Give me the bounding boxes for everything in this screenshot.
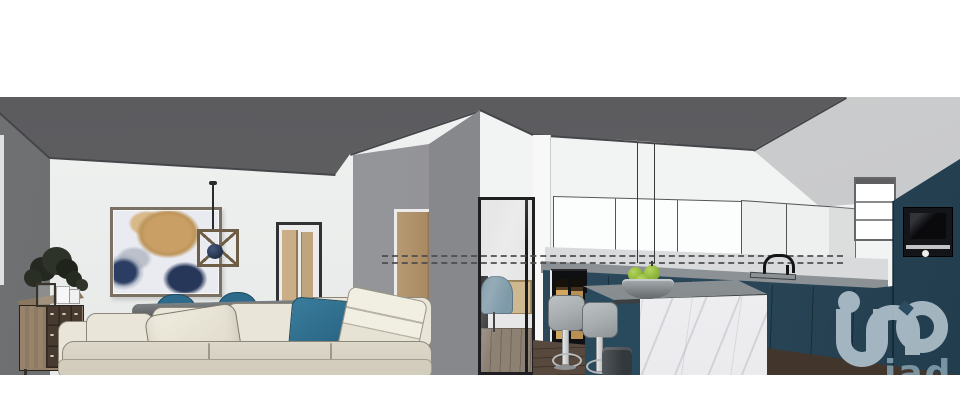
- built-in-microwave-oven: [903, 207, 953, 257]
- island-pendant-cord: [637, 143, 638, 263]
- glass-partition: [478, 197, 535, 375]
- sideboard-wood-door: [20, 306, 46, 368]
- photo-frame: [56, 286, 70, 304]
- cabinet-seam: [615, 199, 616, 251]
- shaded-upper-cabinet: [829, 206, 856, 260]
- bar-stool-seat: [582, 302, 618, 338]
- shelf: [856, 219, 894, 221]
- island-pendant-cord: [654, 143, 655, 263]
- photo-frame: [69, 289, 80, 304]
- lantern-vase: [36, 283, 56, 307]
- waste-bin: [602, 347, 632, 375]
- pendant-light: [197, 229, 239, 267]
- bar-stool-seat: [548, 295, 585, 331]
- open-shelving-unit: [854, 177, 896, 241]
- iad-watermark: iad: [836, 291, 960, 375]
- rendering-page: iad: [0, 0, 960, 415]
- cabinet-seam: [677, 200, 678, 252]
- interior-rendering: iad: [0, 97, 960, 375]
- wall-edge-highlight: [0, 135, 4, 285]
- microwave-knob: [922, 250, 929, 257]
- upper-cabinets: [553, 196, 743, 255]
- corner-upper-cabinets: [741, 200, 831, 262]
- pendant-rod: [212, 183, 214, 231]
- apple-stem: [651, 261, 653, 266]
- bar-stool-base: [554, 365, 576, 370]
- cabinet-seam: [786, 204, 787, 258]
- faucet: [763, 254, 795, 273]
- watermark-brand-text: iad: [884, 353, 952, 375]
- sofa-front-edge: [58, 359, 432, 375]
- pendant-bulb: [207, 244, 223, 259]
- microwave-door-glass: [910, 213, 946, 239]
- shelf: [856, 201, 894, 203]
- shelf-top-band: [856, 179, 894, 184]
- microwave-handle: [906, 245, 950, 249]
- sideboard-leg: [24, 369, 27, 375]
